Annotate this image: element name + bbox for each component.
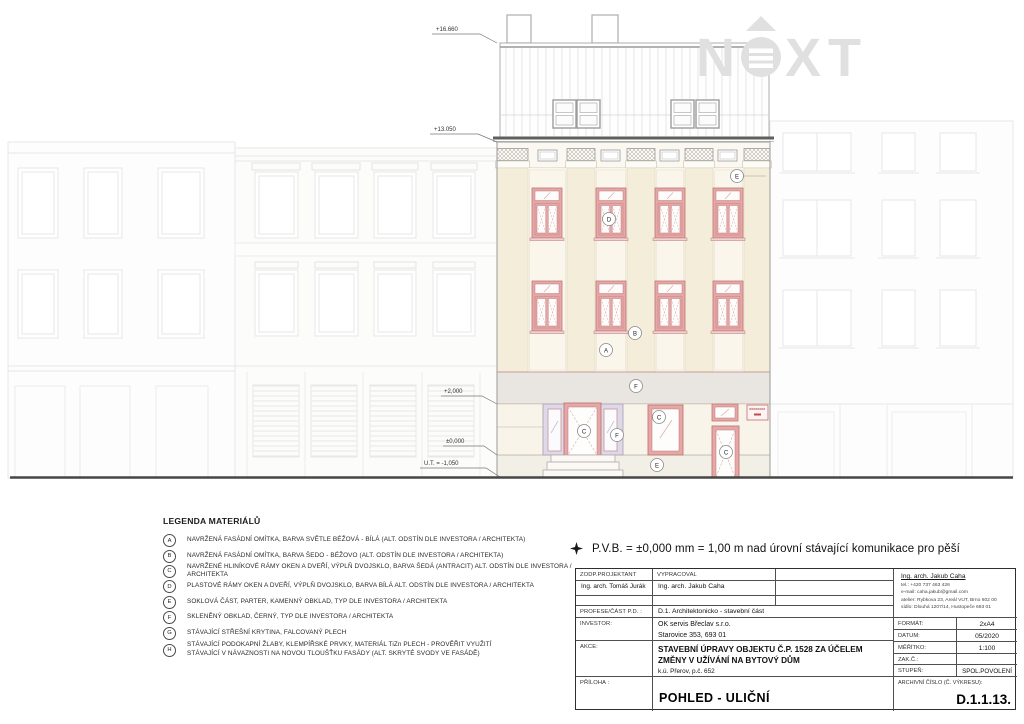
left-neighbor-building bbox=[8, 142, 235, 478]
legend-item-text: PLASTOVÉ RÁMY OKEN A DVEŘÍ, VÝPLŇ DVOJSK… bbox=[187, 582, 534, 591]
empty-cell bbox=[776, 569, 894, 581]
svg-text:+16.660: +16.660 bbox=[436, 27, 459, 33]
datum-value: 05/2020 bbox=[957, 630, 1017, 642]
watermark-letter: N bbox=[696, 28, 735, 88]
watermark-arrow-icon bbox=[746, 16, 776, 31]
akce-value: STAVEBNÍ ÚPRAVY OBJEKTU Č.P. 1528 ZA ÚČE… bbox=[653, 641, 894, 677]
investor-value: OK servis Břeclav s.r.o. Starovice 353, … bbox=[653, 618, 894, 641]
window bbox=[653, 188, 687, 241]
side-door bbox=[712, 404, 739, 478]
legend-item: B NAVRŽENÁ FASÁDNÍ OMÍTKA, BARVA ŠEDO - … bbox=[163, 548, 593, 563]
window bbox=[711, 188, 745, 241]
facade-label-c: C bbox=[653, 411, 666, 424]
facade-label-f: F bbox=[611, 429, 624, 442]
legend-item: H STÁVAJÍCÍ PODOKAPNÍ ŽLABY, KLEMPÍŘSKÉ … bbox=[163, 641, 593, 660]
contact-atelier: atelier: Rybkova 23, Areál VUT, Brno 602… bbox=[901, 597, 1017, 604]
svg-text:E: E bbox=[655, 463, 659, 469]
materials-legend: LEGENDA MATERIÁLŮ A NAVRŽENÁ FASÁDNÍ OMÍ… bbox=[163, 516, 593, 660]
legend-item-text: NAVRŽENÁ FASÁDNÍ OMÍTKA, BARVA ŠEDO - BÉ… bbox=[187, 552, 503, 561]
akce-line3: k.ú. Přerov, p.č. 652 bbox=[658, 668, 893, 675]
investor-line2: Starovice 353, 693 01 bbox=[658, 631, 893, 642]
facade-label-b: B bbox=[629, 327, 642, 340]
chimney bbox=[592, 15, 618, 43]
archive-number-label: ARCHIVNÍ ČÍSLO (Č. VÝKRESU): bbox=[894, 677, 1017, 686]
investor-line1: OK servis Břeclav s.r.o. bbox=[658, 620, 893, 631]
empty-cell bbox=[653, 596, 776, 606]
drawing-number: D.1.1.13. bbox=[956, 692, 1011, 707]
window bbox=[594, 281, 628, 334]
akce-line1: STAVEBNÍ ÚPRAVY OBJEKTU Č.P. 1528 ZA ÚČE… bbox=[658, 644, 893, 655]
svg-text:C: C bbox=[657, 415, 662, 421]
empty-cell bbox=[776, 596, 894, 606]
legend-key-badge: A bbox=[163, 534, 176, 547]
legend-item: C NAVRŽENÉ HLINÍKOVÉ RÁMY OKEN A DVEŘÍ, … bbox=[163, 564, 593, 579]
datum-note-text: P.V.B. = ±0,000 mm = 1,00 m nad úrovní s… bbox=[592, 543, 960, 555]
watermark-letters: XT bbox=[785, 28, 868, 88]
datum-symbol-icon bbox=[570, 542, 583, 555]
facade-label-e: E bbox=[651, 459, 664, 472]
window bbox=[711, 281, 745, 334]
facade-label-f: F bbox=[630, 380, 643, 393]
zodp-projektant-value: Ing. arch. Tomáš Jurák bbox=[576, 581, 653, 596]
legend-item-text: SOKLOVÁ ČÁST, PARTER, KAMENNÝ OBKLAD, TY… bbox=[187, 598, 447, 607]
elevation-mark-eave: +13.050 bbox=[430, 127, 497, 142]
facade-label-d: D bbox=[603, 213, 616, 226]
shop-window bbox=[648, 405, 683, 455]
legend-key-badge: D bbox=[163, 580, 176, 593]
investor-label: INVESTOR: bbox=[576, 618, 653, 641]
legend-item: F SKLENĚNÝ OBKLAD, ČERNÝ, TYP DLE INVEST… bbox=[163, 610, 593, 625]
meritko-value: 1:100 bbox=[957, 642, 1017, 654]
title-block: ZODP.PROJEKTANT VYPRACOVAL Ing. arch. To… bbox=[575, 568, 1016, 710]
contact-email: e-mail: caha.jakub@gmail.com bbox=[901, 589, 1017, 596]
facade-label-a: A bbox=[600, 344, 613, 357]
legend-key-badge: E bbox=[163, 596, 176, 609]
sidelight bbox=[548, 409, 561, 451]
svg-text:+13.050: +13.050 bbox=[434, 127, 457, 133]
svg-text:C: C bbox=[582, 429, 587, 435]
vypracoval-label: VYPRACOVAL bbox=[653, 569, 776, 581]
drawing-sheet: N XT D E B A F C F C C E +16.660 bbox=[0, 0, 1024, 724]
svg-text:U.T. = -1,050: U.T. = -1,050 bbox=[424, 461, 459, 467]
elevation-mark-roof-top: +16.660 bbox=[432, 27, 497, 43]
legend-key-badge: C bbox=[163, 565, 176, 578]
contact-name: Ing. arch. Jakub Caha bbox=[901, 573, 1017, 580]
contact-tel: tel.: +420 737 463 426 bbox=[901, 582, 1017, 589]
shop-sign bbox=[747, 405, 768, 420]
akce-line2: ZMĚNY V UŽÍVÁNÍ NA BYTOVÝ DŮM bbox=[658, 655, 893, 666]
legend-title: LEGENDA MATERIÁLŮ bbox=[163, 516, 593, 526]
legend-key-badge: B bbox=[163, 550, 176, 563]
legend-item-text: SKLENĚNÝ OBKLAD, ČERNÝ, TYP DLE INVESTOR… bbox=[187, 613, 393, 622]
svg-text:+2,000: +2,000 bbox=[444, 389, 463, 395]
svg-text:C: C bbox=[724, 450, 729, 456]
architect-contact: Ing. arch. Jakub Caha tel.: +420 737 463… bbox=[894, 569, 1017, 618]
entrance-steps bbox=[543, 455, 623, 478]
roof-window bbox=[696, 100, 719, 128]
legend-item: E SOKLOVÁ ČÁST, PARTER, KAMENNÝ OBKLAD, … bbox=[163, 595, 593, 610]
datum-label: DATUM: bbox=[894, 630, 957, 642]
roof-window bbox=[671, 100, 694, 128]
facade-label-c: C bbox=[578, 425, 591, 438]
archive-number-cell: ARCHIVNÍ ČÍSLO (Č. VÝKRESU): D.1.1.13. bbox=[894, 677, 1017, 711]
legend-item-text: STÁVAJÍCÍ STŘEŠNÍ KRYTINA, FALCOVANÝ PLE… bbox=[187, 629, 346, 638]
ground-floor bbox=[497, 403, 770, 478]
legend-item-text-line1: STÁVAJÍCÍ PODOKAPNÍ ŽLABY, KLEMPÍŘSKÉ PR… bbox=[187, 641, 492, 648]
svg-text:D: D bbox=[607, 217, 612, 223]
contact-sidlo: sídlo: Dlouhá 1207/14, Hustopeče 693 01 bbox=[901, 604, 1017, 611]
entrance bbox=[543, 403, 623, 478]
legend-item-text: NAVRŽENÉ HLINÍKOVÉ RÁMY OKEN A DVEŘÍ, VÝ… bbox=[187, 563, 593, 581]
chimney bbox=[507, 15, 531, 43]
facade-label-c: C bbox=[720, 446, 733, 459]
right-neighbor-building bbox=[770, 121, 1013, 478]
priloha-value: POHLED - ULIČNÍ bbox=[653, 677, 894, 711]
profese-value: D.1. Architektonicko - stavební část bbox=[653, 606, 894, 618]
datum-note: P.V.B. = ±0,000 mm = 1,00 m nad úrovní s… bbox=[570, 542, 960, 555]
profese-label: PROFESE/ČÁST P.D. : bbox=[576, 606, 653, 618]
ornate-neighbor-building bbox=[235, 148, 497, 478]
empty-cell bbox=[776, 581, 894, 596]
vypracoval-value: Ing. arch. Jakub Caha bbox=[653, 581, 776, 596]
empty-cell bbox=[576, 596, 653, 606]
meritko-label: MĚŘÍTKO: bbox=[894, 642, 957, 654]
svg-text:F: F bbox=[634, 384, 638, 390]
roof-window bbox=[577, 100, 600, 128]
svg-text:±0,000: ±0,000 bbox=[446, 439, 465, 445]
svg-text:B: B bbox=[633, 331, 637, 337]
format-label: FORMÁT: bbox=[894, 618, 957, 630]
cornice bbox=[493, 137, 774, 169]
legend-key-badge: F bbox=[163, 611, 176, 624]
legend-item-text: STÁVAJÍCÍ PODOKAPNÍ ŽLABY, KLEMPÍŘSKÉ PR… bbox=[187, 641, 492, 659]
street-elevation-drawing: N XT D E B A F C F C C E +16.660 bbox=[0, 0, 1024, 500]
legend-key-badge: G bbox=[163, 627, 176, 640]
zakc-value bbox=[957, 654, 1017, 665]
legend-item: G STÁVAJÍCÍ STŘEŠNÍ KRYTINA, FALCOVANÝ P… bbox=[163, 625, 593, 640]
legend-item-text: NAVRŽENÁ FASÁDNÍ OMÍTKA, BARVA SVĚTLE BÉ… bbox=[187, 536, 525, 545]
legend-item-text-line2: STÁVAJÍCÍ V NÁVAZNOSTI NA NOVOU TLOUŠŤKU… bbox=[187, 650, 492, 659]
legend-key-badge: H bbox=[163, 644, 176, 657]
legend-item: D PLASTOVÉ RÁMY OKEN A DVEŘÍ, VÝPLŇ DVOJ… bbox=[163, 579, 593, 594]
stupen-value: SPOL.POVOLENÍ bbox=[957, 665, 1017, 677]
svg-text:F: F bbox=[615, 433, 619, 439]
svg-text:A: A bbox=[604, 348, 608, 354]
akce-label: AKCE: bbox=[576, 641, 653, 677]
legend-item: A NAVRŽENÁ FASÁDNÍ OMÍTKA, BARVA SVĚTLE … bbox=[163, 533, 593, 548]
watermark: N XT bbox=[696, 16, 868, 88]
priloha-label: PŘÍLOHA : bbox=[576, 677, 653, 711]
stupen-label: STUPEŇ: bbox=[894, 665, 957, 677]
zakc-label: ZAK.Č.: bbox=[894, 654, 957, 665]
window bbox=[530, 281, 564, 334]
window bbox=[530, 188, 564, 241]
zodp-projektant-label: ZODP.PROJEKTANT bbox=[576, 569, 653, 581]
roof-window bbox=[553, 100, 576, 128]
format-value: 2xA4 bbox=[957, 618, 1017, 630]
window bbox=[653, 281, 687, 334]
svg-text:E: E bbox=[735, 174, 739, 180]
